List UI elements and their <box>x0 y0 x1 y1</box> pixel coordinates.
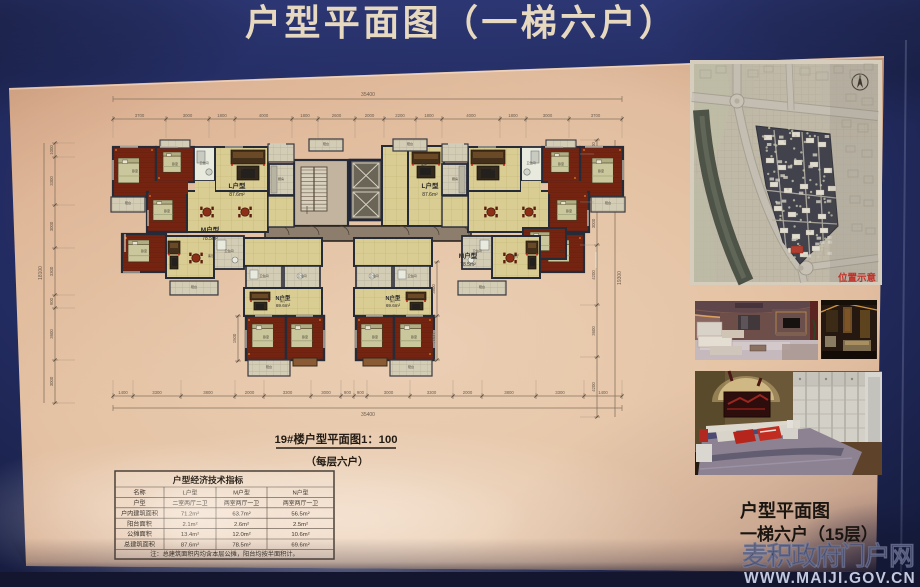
svg-text:两室两厅一卫: 两室两厅一卫 <box>283 499 318 507</box>
svg-text:3000: 3000 <box>543 113 553 118</box>
svg-text:2000: 2000 <box>245 390 255 395</box>
svg-text:客厅: 客厅 <box>421 162 427 167</box>
svg-text:卫生间: 卫生间 <box>224 248 233 253</box>
svg-text:卧室: 卧室 <box>164 208 170 213</box>
svg-text:厨房: 厨房 <box>452 176 458 181</box>
svg-text:阳台: 阳台 <box>407 141 413 146</box>
svg-text:阳台: 阳台 <box>408 364 414 369</box>
svg-text:3000: 3000 <box>591 218 596 228</box>
svg-text:69.6m²: 69.6m² <box>386 303 401 308</box>
svg-text:卧室: 卧室 <box>411 334 417 339</box>
svg-text:卧室: 卧室 <box>558 161 564 166</box>
svg-text:3000: 3000 <box>49 221 54 231</box>
svg-text:3600: 3600 <box>431 333 436 343</box>
svg-text:69.6m²: 69.6m² <box>276 303 291 308</box>
svg-text:3600: 3600 <box>591 326 596 336</box>
svg-text:19#楼户型平面图1：100: 19#楼户型平面图1：100 <box>274 432 397 446</box>
svg-text:M户型: M户型 <box>201 225 220 234</box>
svg-text:35400: 35400 <box>361 92 375 98</box>
svg-text:总建筑面积: 总建筑面积 <box>124 541 155 549</box>
svg-text:3300: 3300 <box>555 390 565 395</box>
svg-text:卧室: 卧室 <box>141 248 147 253</box>
svg-text:3800: 3800 <box>203 390 213 395</box>
svg-text:3300: 3300 <box>49 266 54 276</box>
svg-text:1500: 1500 <box>232 333 237 343</box>
svg-text:客厅: 客厅 <box>208 253 214 258</box>
svg-text:户型平面图（一梯六户）: 户型平面图（一梯六户） <box>245 2 678 43</box>
svg-text:2200: 2200 <box>395 113 405 118</box>
svg-text:3300: 3300 <box>427 390 437 395</box>
svg-text:卫生间: 卫生间 <box>369 273 378 278</box>
svg-text:WWW.MAIJI.GOV.CN: WWW.MAIJI.GOV.CN <box>744 570 916 587</box>
svg-text:卧室: 卧室 <box>566 208 572 213</box>
svg-text:4000: 4000 <box>259 113 269 118</box>
svg-text:客厅: 客厅 <box>491 166 497 171</box>
svg-text:3300: 3300 <box>283 390 293 395</box>
svg-text:卫生间: 卫生间 <box>199 160 208 165</box>
svg-text:位置示意: 位置示意 <box>838 272 877 284</box>
svg-text:56.5m²: 56.5m² <box>291 511 309 517</box>
svg-text:客厅: 客厅 <box>390 298 396 303</box>
svg-text:卫生间: 卫生间 <box>472 248 481 253</box>
svg-text:卧室: 卧室 <box>302 334 308 339</box>
svg-text:L户型: L户型 <box>422 181 439 190</box>
svg-text:卫生间: 卫生间 <box>407 273 416 278</box>
svg-text:卧室: 卧室 <box>372 334 378 339</box>
svg-text:2000: 2000 <box>463 390 473 395</box>
svg-text:3000: 3000 <box>183 113 193 118</box>
svg-text:900: 900 <box>344 390 352 395</box>
svg-text:阳台: 阳台 <box>191 284 197 289</box>
svg-text:阳台: 阳台 <box>605 200 611 205</box>
svg-text:阳台: 阳台 <box>323 141 329 146</box>
svg-text:1400: 1400 <box>118 390 128 395</box>
svg-text:35400: 35400 <box>361 412 375 418</box>
svg-text:卧室: 卧室 <box>598 168 604 173</box>
svg-text:3000: 3000 <box>49 376 54 386</box>
svg-text:3000: 3000 <box>321 390 331 395</box>
svg-text:3300: 3300 <box>49 176 54 186</box>
svg-text:4200: 4200 <box>591 382 596 392</box>
svg-text:900: 900 <box>357 390 365 395</box>
svg-text:3800: 3800 <box>431 284 436 294</box>
svg-text:69.6m²: 69.6m² <box>291 543 309 549</box>
svg-text:3600: 3600 <box>49 329 54 339</box>
svg-text:卫生间: 卫生间 <box>526 160 535 165</box>
svg-text:3000: 3000 <box>384 390 394 395</box>
svg-text:4200: 4200 <box>591 270 596 280</box>
svg-text:4000: 4000 <box>466 113 476 118</box>
svg-text:阳台: 阳台 <box>266 364 272 369</box>
svg-text:10.6m²: 10.6m² <box>291 532 309 538</box>
svg-text:（每层六户）: （每层六户） <box>306 455 369 468</box>
svg-text:卫生间: 卫生间 <box>259 273 268 278</box>
svg-text:3700: 3700 <box>591 113 601 118</box>
svg-text:1000: 1000 <box>49 145 54 155</box>
svg-text:客厅: 客厅 <box>238 166 244 171</box>
svg-text:客厅: 客厅 <box>513 253 519 258</box>
svg-text:N户型: N户型 <box>292 489 308 497</box>
svg-text:19300: 19300 <box>617 271 623 285</box>
svg-text:1800: 1800 <box>508 113 518 118</box>
svg-text:1800: 1800 <box>300 113 310 118</box>
svg-text:87.6m²: 87.6m² <box>422 192 438 198</box>
svg-text:卫生间: 卫生间 <box>297 273 306 278</box>
svg-text:3300: 3300 <box>152 390 162 395</box>
svg-text:户型平面图: 户型平面图 <box>740 500 830 521</box>
svg-text:卧室: 卧室 <box>559 248 565 253</box>
svg-text:L户型: L户型 <box>229 181 246 190</box>
svg-text:78.5m²: 78.5m² <box>232 543 250 549</box>
svg-text:客厅: 客厅 <box>280 298 286 303</box>
svg-text:阳台: 阳台 <box>125 200 131 205</box>
svg-text:卧室: 卧室 <box>263 334 269 339</box>
svg-text:麦积政府门户网: 麦积政府门户网 <box>742 541 914 571</box>
svg-text:18100: 18100 <box>38 266 44 280</box>
svg-text:2.5m²: 2.5m² <box>293 522 308 528</box>
svg-text:900: 900 <box>49 297 54 305</box>
svg-text:卧室: 卧室 <box>132 168 138 173</box>
svg-text:厨房: 厨房 <box>278 176 284 181</box>
svg-text:78.5m²: 78.5m² <box>202 236 218 242</box>
svg-text:注：总建筑面积内均含本层公摊，阳台均按半面积计。: 注：总建筑面积内均含本层公摊，阳台均按半面积计。 <box>150 550 299 558</box>
svg-text:1400: 1400 <box>598 390 608 395</box>
svg-text:78.5m²: 78.5m² <box>460 262 476 268</box>
svg-text:3800: 3800 <box>504 390 514 395</box>
svg-text:2600: 2600 <box>332 113 342 118</box>
svg-text:阳台: 阳台 <box>479 284 485 289</box>
svg-text:87.6m²: 87.6m² <box>229 192 245 198</box>
svg-text:卧室: 卧室 <box>172 161 178 166</box>
svg-text:2000: 2000 <box>365 113 375 118</box>
svg-text:1800: 1800 <box>217 113 227 118</box>
svg-text:1800: 1800 <box>424 113 434 118</box>
svg-text:3700: 3700 <box>135 113 145 118</box>
